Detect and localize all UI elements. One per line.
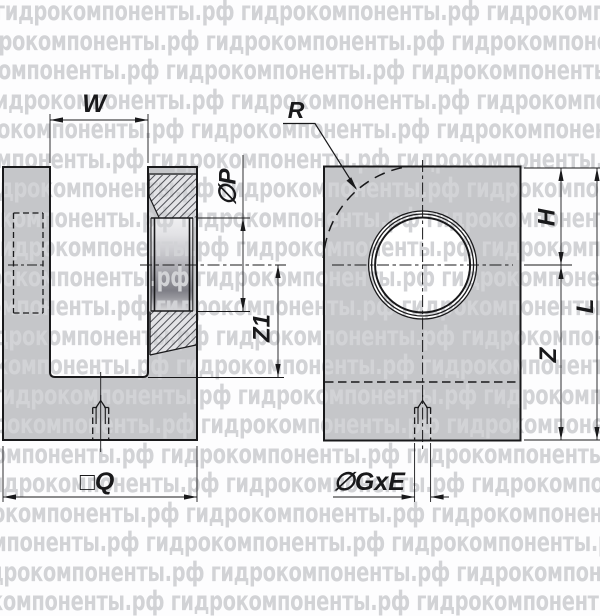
dim-label-r: R (288, 97, 305, 123)
hatch-lower (150, 312, 196, 356)
hidden-thread-lines (14, 213, 44, 313)
dim-z1 (275, 265, 280, 377)
dim-label-z: Z (535, 346, 562, 363)
dim-label-h: H (533, 208, 560, 226)
dim-label-q: □Q (80, 468, 115, 496)
dim-label-gxe: ∅GxE (333, 468, 406, 496)
dim-label-w: W (82, 90, 108, 118)
dim-label-p: ∅P (214, 168, 241, 206)
dim-label-z1: Z1 (248, 314, 275, 343)
linework-layer: W ∅P Z1 □Q R H Z L ∅GxE (0, 0, 600, 600)
section-view (3, 167, 286, 452)
dim-label-l: L (572, 299, 599, 314)
corner-radius-arc (323, 168, 402, 258)
leader-r (283, 124, 357, 191)
technical-drawing: гидрокомпоненты.рф гидрокомпоненты.рф ги… (0, 0, 600, 600)
front-view (323, 160, 520, 452)
dim-w (50, 114, 148, 163)
